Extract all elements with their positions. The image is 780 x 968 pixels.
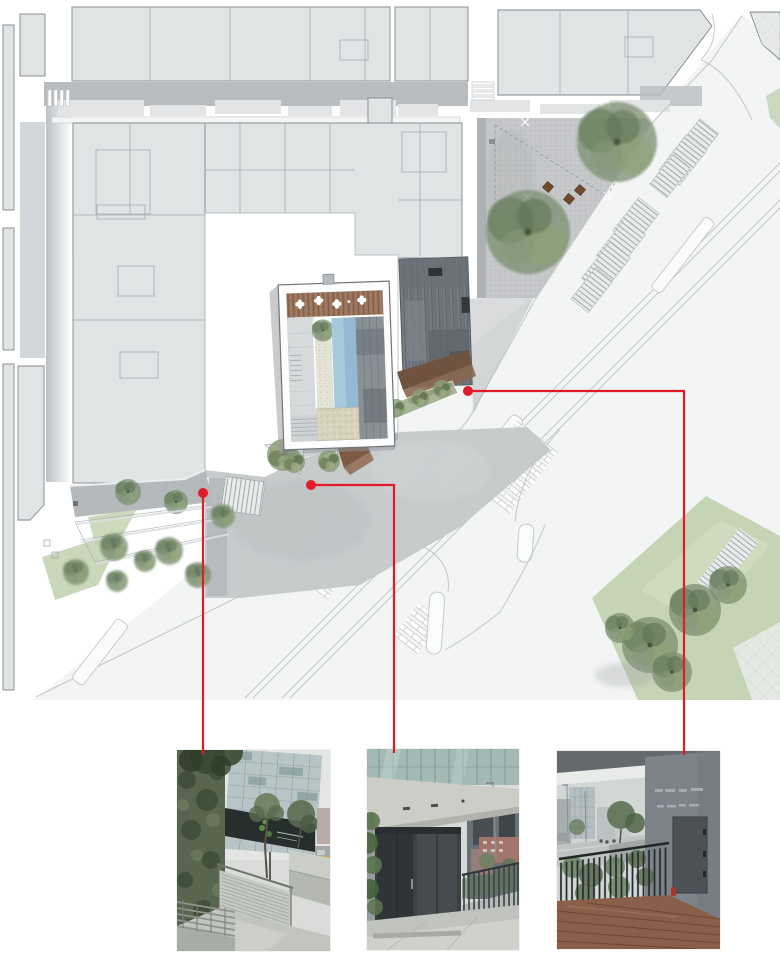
photo-street-stairs-image — [177, 750, 330, 951]
photo-deck-entrance-image — [557, 751, 720, 949]
bus — [557, 833, 569, 841]
central-building — [269, 272, 395, 454]
gravel-court — [317, 407, 360, 440]
photo-fence-wood-deck-entrance — [557, 751, 720, 949]
photo-entrance-image — [367, 749, 519, 950]
fire-extinguisher — [671, 887, 676, 896]
photo-street-stairs-ivy — [177, 750, 330, 951]
site-plan — [0, 0, 780, 710]
entrance-door — [673, 817, 707, 893]
door-handle — [411, 879, 413, 889]
page — [0, 0, 780, 968]
background-street — [315, 808, 330, 862]
photo-entrance-under-canopy — [367, 749, 519, 950]
lower-steps — [291, 415, 318, 442]
